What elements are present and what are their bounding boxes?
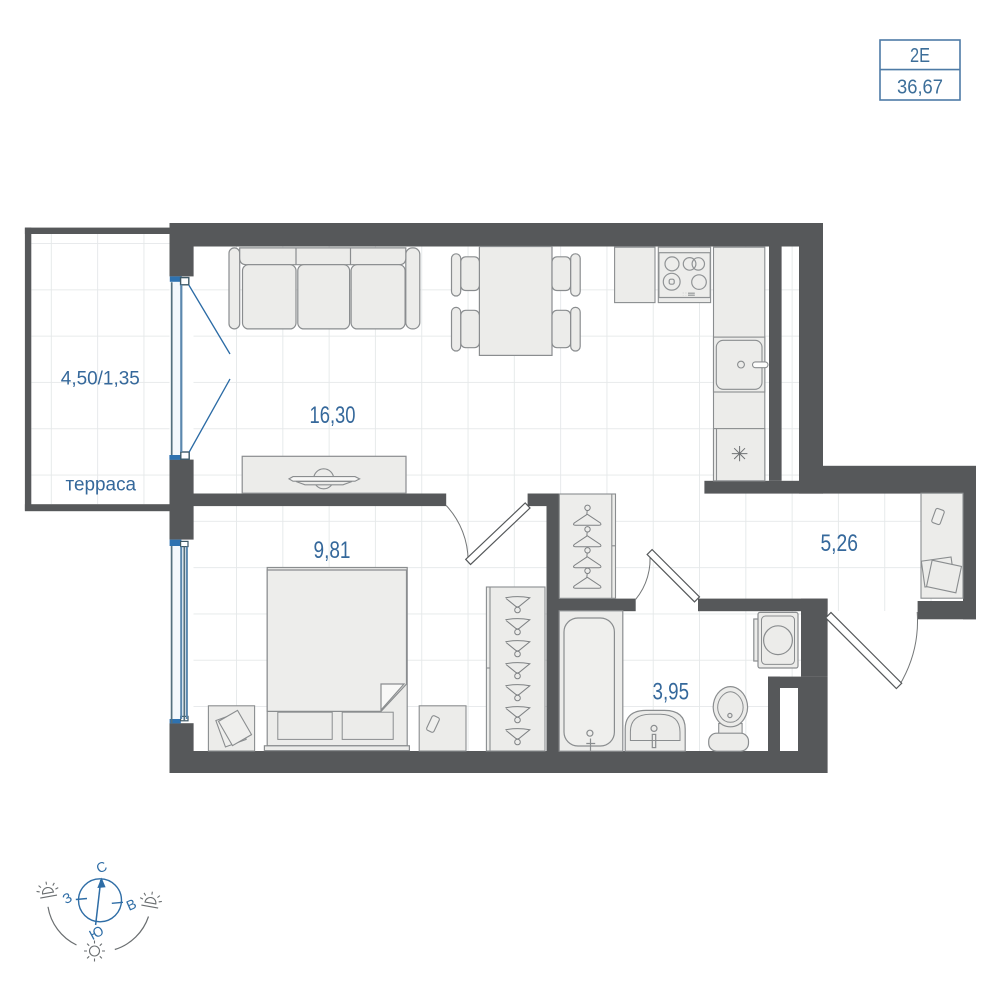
svg-text:З: З xyxy=(60,889,75,907)
svg-text:9,81: 9,81 xyxy=(314,537,351,564)
svg-text:4,50/1,35: 4,50/1,35 xyxy=(61,368,140,389)
svg-text:терраса: терраса xyxy=(66,475,137,496)
svg-text:С: С xyxy=(94,858,110,877)
svg-text:3,95: 3,95 xyxy=(653,679,690,706)
svg-text:16,30: 16,30 xyxy=(310,402,356,429)
svg-text:5,26: 5,26 xyxy=(820,530,858,557)
svg-text:2Е: 2Е xyxy=(910,45,930,67)
svg-text:В: В xyxy=(124,895,139,913)
svg-text:Ю: Ю xyxy=(86,922,106,943)
svg-text:36,67: 36,67 xyxy=(897,77,943,99)
